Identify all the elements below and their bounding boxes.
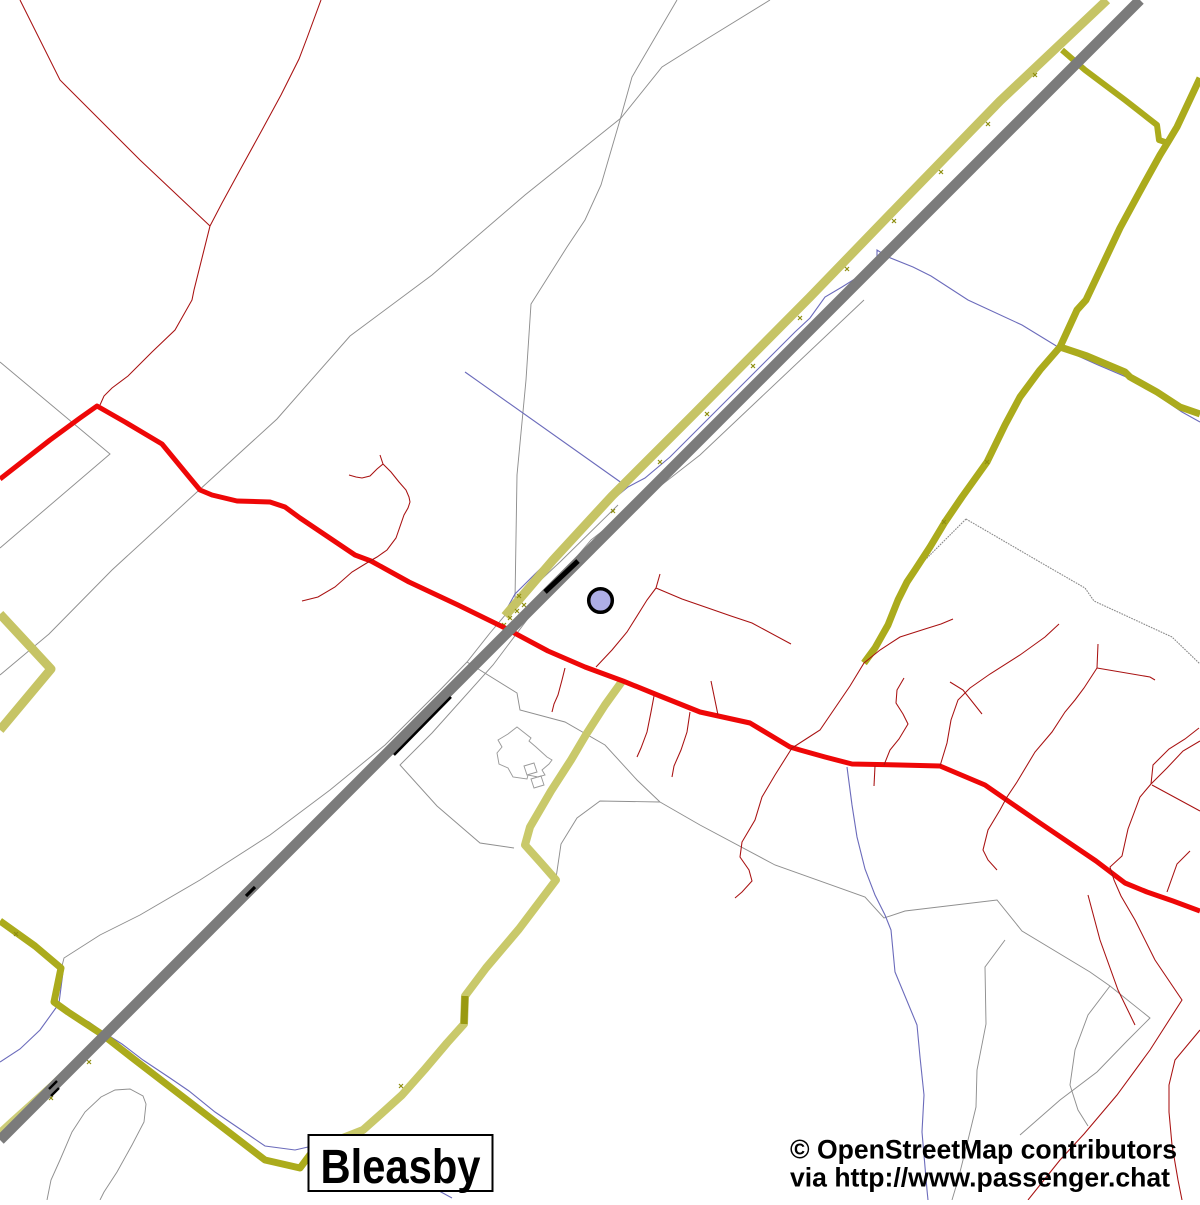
svg-text:© OpenStreetMap contributors: © OpenStreetMap contributors <box>790 1135 1177 1165</box>
svg-text:Bleasby: Bleasby <box>321 1141 481 1194</box>
svg-text:via http://www.passenger.chat: via http://www.passenger.chat <box>790 1163 1170 1193</box>
